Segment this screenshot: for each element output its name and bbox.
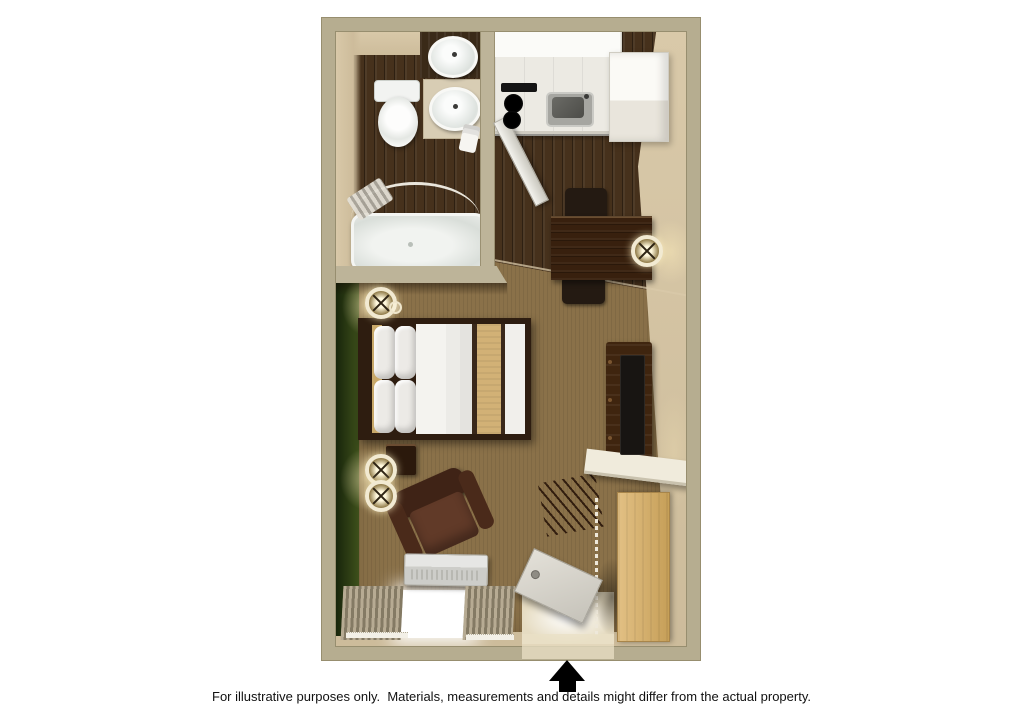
disclaimer-text: For illustrative purposes only. Material… [0, 689, 1023, 704]
entry-threshold [522, 634, 614, 659]
entrance-arrow-icon [549, 660, 585, 681]
floor-plan-page: For illustrative purposes only. Material… [0, 0, 1023, 716]
outer-walls [322, 18, 700, 660]
